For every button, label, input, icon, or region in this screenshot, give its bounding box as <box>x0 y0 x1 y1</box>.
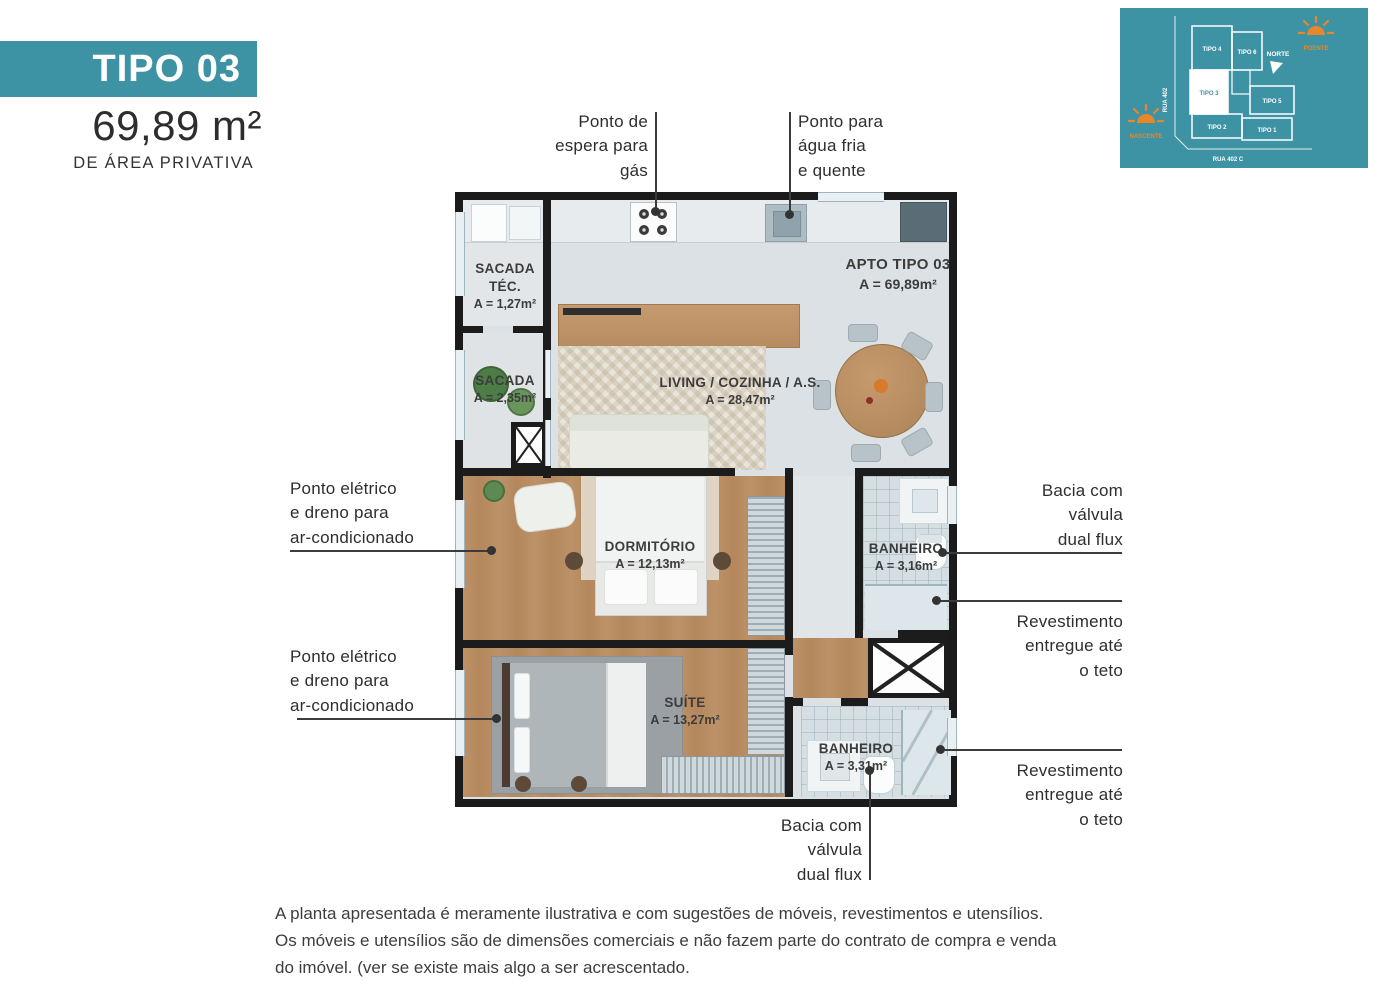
leader-dot <box>938 548 947 557</box>
annotation-coating-top: Revestimento entregue até o teto <box>983 610 1123 683</box>
sun-nascente-label: NASCENTE <box>1129 134 1162 140</box>
page: TIPO 03 69,89 m² DE ÁREA PRIVATIVA TIPO … <box>0 0 1400 990</box>
leader-dot <box>492 714 501 723</box>
room-label-living: LIVING / COZINHA / A.S. A = 28,47m² <box>645 374 835 409</box>
dining-chair <box>851 444 881 462</box>
north-label: NORTE <box>1267 51 1290 58</box>
unit-tipo-2-label: TIPO 2 <box>1207 125 1227 131</box>
unit-tipo-6-label: TIPO 6 <box>1237 50 1257 56</box>
wall <box>785 476 793 655</box>
corridor-floor <box>793 476 855 638</box>
suite-bed <box>501 662 645 788</box>
pillow <box>514 727 530 773</box>
area-caption: DE ÁREA PRIVATIVA <box>0 154 254 173</box>
floor-plan: SACADA TÉC. A = 1,27m² SACADA A = 2,35m²… <box>455 192 957 807</box>
wall <box>841 698 868 706</box>
leader-line-gas <box>655 112 657 212</box>
annotation-coating-bottom: Revestimento entregue até o teto <box>983 759 1123 832</box>
shaft-box <box>511 422 547 468</box>
annotation-toilet-right: Bacia com válvula dual flux <box>988 479 1123 552</box>
pillow <box>604 569 648 605</box>
dining-chair <box>848 324 878 342</box>
dining-chair <box>925 382 943 412</box>
decor-item <box>515 776 531 792</box>
north-arrow-icon <box>1270 61 1283 74</box>
annotation-ac-top: Ponto elétrico e dreno para ar-condicion… <box>290 477 490 550</box>
sun-nascente-icon <box>1129 105 1163 123</box>
disclaimer-text: A planta apresentada é meramente ilustra… <box>275 901 1155 982</box>
bathroom-vanity <box>899 478 949 524</box>
wall <box>855 630 863 638</box>
unit-tipo-3-label: TIPO 3 <box>1199 91 1219 97</box>
key-plan-drawing: TIPO 4 TIPO 6 TIPO 3 TIPO 5 TIPO 2 TIPO … <box>1120 8 1368 168</box>
type-banner: TIPO 03 <box>0 41 257 97</box>
wall <box>785 468 793 476</box>
leader-line-ac-bottom <box>297 718 497 720</box>
nightstand <box>565 552 583 570</box>
laundry-machine <box>509 206 541 240</box>
shaft-box <box>868 638 949 698</box>
room-label-sacada: SACADA A = 2,35m² <box>461 372 549 407</box>
key-plan: TIPO 4 TIPO 6 TIPO 3 TIPO 5 TIPO 2 TIPO … <box>1120 8 1368 168</box>
wall <box>463 640 785 648</box>
laundry-tub <box>471 204 507 242</box>
room-label-banheiro-2: BANHEIRO A = 3,31m² <box>811 740 901 775</box>
shower-area <box>865 584 947 630</box>
wall <box>898 630 949 638</box>
suite-wardrobe <box>661 756 785 794</box>
street-rua-402c-label: RUA 402 C <box>1213 157 1244 163</box>
dormitorio-wardrobe <box>747 496 785 636</box>
leader-line-ac-top <box>290 550 492 552</box>
sofa <box>569 414 709 472</box>
fridge <box>900 202 947 242</box>
leader-line-toilet-bottom <box>869 770 871 880</box>
wall <box>785 697 793 797</box>
window <box>818 192 884 202</box>
room-label-banheiro-1: BANHEIRO A = 3,16m² <box>861 540 951 575</box>
leader-dot <box>785 210 794 219</box>
pillow <box>654 569 698 605</box>
leader-dot <box>651 207 660 216</box>
leader-line-coating-bottom <box>941 749 1122 751</box>
core-block <box>1232 70 1250 94</box>
wall <box>463 468 735 476</box>
pillow <box>514 673 530 719</box>
tv-rack <box>563 308 641 315</box>
wall <box>463 326 483 333</box>
leader-line-water <box>789 112 791 215</box>
leader-dot <box>932 596 941 605</box>
unit-tipo-4-label: TIPO 4 <box>1202 47 1222 53</box>
area-value: 69,89 m² <box>0 102 262 150</box>
annotation-gas: Ponto de espera para gás <box>520 110 648 183</box>
wall <box>793 698 803 706</box>
annotation-water: Ponto para água fria e quente <box>798 110 938 183</box>
annotation-ac-bottom: Ponto elétrico e dreno para ar-condicion… <box>290 645 490 718</box>
leader-dot <box>936 745 945 754</box>
room-label-dormitorio: DORMITÓRIO A = 12,13m² <box>595 538 705 573</box>
hall-floor <box>793 638 868 698</box>
annotation-toilet-bottom: Bacia com válvula dual flux <box>732 814 862 887</box>
apto-label: APTO TIPO 03 A = 69,89m² <box>813 255 983 294</box>
kitchen-sink <box>765 204 807 242</box>
unit-tipo-1-label: TIPO 1 <box>1257 128 1277 134</box>
wall <box>855 468 949 476</box>
armchair <box>512 480 578 534</box>
leader-line-toilet-right <box>943 552 1122 554</box>
sun-poente-label: POENTE <box>1304 46 1329 52</box>
sun-poente-icon <box>1299 17 1333 35</box>
leader-line-coating-top <box>937 600 1122 602</box>
window <box>947 486 957 524</box>
wall <box>513 326 543 333</box>
decor-item <box>571 776 587 792</box>
suite-wardrobe-column <box>747 648 785 755</box>
room-label-sacada-tec: SACADA TÉC. A = 1,27m² <box>459 260 551 313</box>
unit-tipo-5-label: TIPO 5 <box>1262 99 1282 105</box>
glass-door <box>545 420 551 466</box>
leader-dot <box>865 766 874 775</box>
nightstand <box>713 552 731 570</box>
fruit-bowl-icon <box>874 379 888 393</box>
dining-table <box>835 344 929 438</box>
room-label-suite: SUÍTE A = 13,27m² <box>635 694 735 729</box>
street-rua-402-label: RUA 402 <box>1163 87 1169 112</box>
